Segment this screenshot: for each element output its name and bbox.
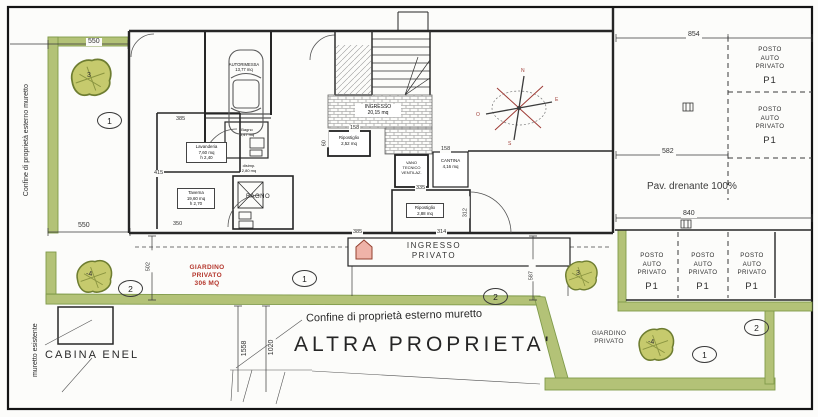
dim-314: 314: [436, 229, 447, 236]
room-label-ripostiglio2: Ripostiglio 2,88 mq: [406, 203, 444, 218]
dim-158-rip: 158: [349, 125, 360, 132]
compass-north-label: N: [521, 68, 525, 74]
tree-label: 3: [87, 72, 91, 79]
room-label-hall: INGRESSO 20,15 mq: [355, 104, 401, 117]
room-label-cantina: CANTINA 4,16 mq: [434, 158, 467, 169]
parking-stall-top-2: POSTO AUTO PRIVATO P1: [728, 98, 812, 154]
dim-312-vert: 312: [463, 196, 470, 218]
stall-label: POSTO AUTO PRIVATO: [738, 252, 767, 277]
giardino-privato-left-label: GIARDINO PRIVATO 306 MQ: [180, 264, 234, 287]
stall-code: P1: [696, 281, 710, 292]
tree-label: 3: [576, 270, 580, 277]
room-label-disimpegno: disimp. 2,80 mq: [234, 163, 264, 173]
site-plan-scan: Confine di proprietà esterno muretto mur…: [0, 0, 818, 417]
room-label-bath-small: Bagno 3,47 mq: [228, 127, 266, 137]
stall-code: P1: [763, 75, 777, 86]
cabina-enel-label: CABINA ENEL: [45, 349, 139, 362]
dim-1020-vert: 1020: [268, 323, 276, 357]
stall-label: POSTO AUTO PRIVATO: [638, 252, 667, 277]
room-label-garage: AUTORIMESSA 13,77 mq: [221, 62, 267, 73]
compass-east-label: E: [555, 97, 558, 103]
giardino-privato-right-label: GIARDINO PRIVATO: [584, 330, 634, 346]
room-label-vano-tecnico: VANO TECNICO VENTILAZ.: [396, 160, 427, 175]
entrance-arrow-icon: [356, 240, 372, 259]
stall-code: P1: [745, 281, 759, 292]
parking-stall-bottom-2: POSTO AUTO PRIVATO P1: [679, 248, 727, 296]
ingresso-privato-label: INGRESSO PRIVATO: [388, 241, 480, 260]
altra-proprieta-label: ALTRA PROPRIETA': [294, 332, 553, 357]
zone-marker: 1: [692, 346, 717, 363]
dim-550-top: 550: [86, 38, 102, 46]
dim-60-vert: 60: [322, 129, 329, 147]
dim-1558-vert: 1558: [241, 324, 249, 358]
boundary-label-left: Confine di proprietà esterno muretto: [23, 64, 31, 216]
parking-stall-top-1: POSTO AUTO PRIVATO P1: [728, 40, 812, 92]
stall-label: POSTO AUTO PRIVATO: [756, 46, 785, 71]
existing-wall-label: muretto esistente: [32, 314, 40, 386]
compass-south-label: S: [508, 141, 511, 147]
room-label-taverna: Taverna 19,60 mq h 2,70: [177, 188, 215, 209]
parking-stall-bottom-3: POSTO AUTO PRIVATO P1: [729, 248, 775, 296]
parking-stall-bottom-1: POSTO AUTO PRIVATO P1: [627, 248, 677, 296]
dim-350: 350: [172, 221, 183, 228]
staircase: [335, 31, 430, 95]
room-label-bagno: BAGNO: [246, 194, 270, 201]
dim-587-vert: 587: [529, 259, 536, 281]
dim-550-bottom: 550: [76, 222, 92, 230]
zone-marker: 2: [744, 319, 769, 336]
compass-rose-icon: [486, 76, 552, 140]
zone-marker: 2: [483, 288, 508, 305]
stall-label: POSTO AUTO PRIVATO: [689, 252, 718, 277]
zone-marker: 1: [292, 270, 317, 287]
stall-code: P1: [763, 135, 777, 146]
dim-502-vert: 502: [146, 250, 153, 272]
dim-415: 415: [153, 170, 164, 177]
dim-335: 335: [415, 185, 426, 192]
dim-158-cantina: 158: [440, 146, 451, 153]
pav-drenante-label: Pav. drenante 100%: [647, 181, 737, 193]
dim-385-room: 385: [175, 116, 186, 123]
tree-label: -4: [648, 339, 654, 346]
stall-code: P1: [645, 281, 659, 292]
room-label-laundry: Lavanderia 7,60 mq h 2,40: [186, 142, 227, 163]
zone-marker: 1: [97, 112, 122, 129]
dim-854: 854: [686, 31, 702, 39]
dim-840: 840: [681, 210, 697, 218]
dim-582: 582: [660, 148, 676, 156]
tree-label: -4: [86, 271, 92, 278]
dim-385-ingresso: 385: [352, 229, 363, 236]
compass-west-label: O: [476, 112, 480, 118]
room-label-ripostiglio: Ripostiglio 2,52 mq: [330, 135, 368, 146]
stall-label: POSTO AUTO PRIVATO: [756, 106, 785, 131]
zone-marker: 2: [118, 280, 143, 297]
